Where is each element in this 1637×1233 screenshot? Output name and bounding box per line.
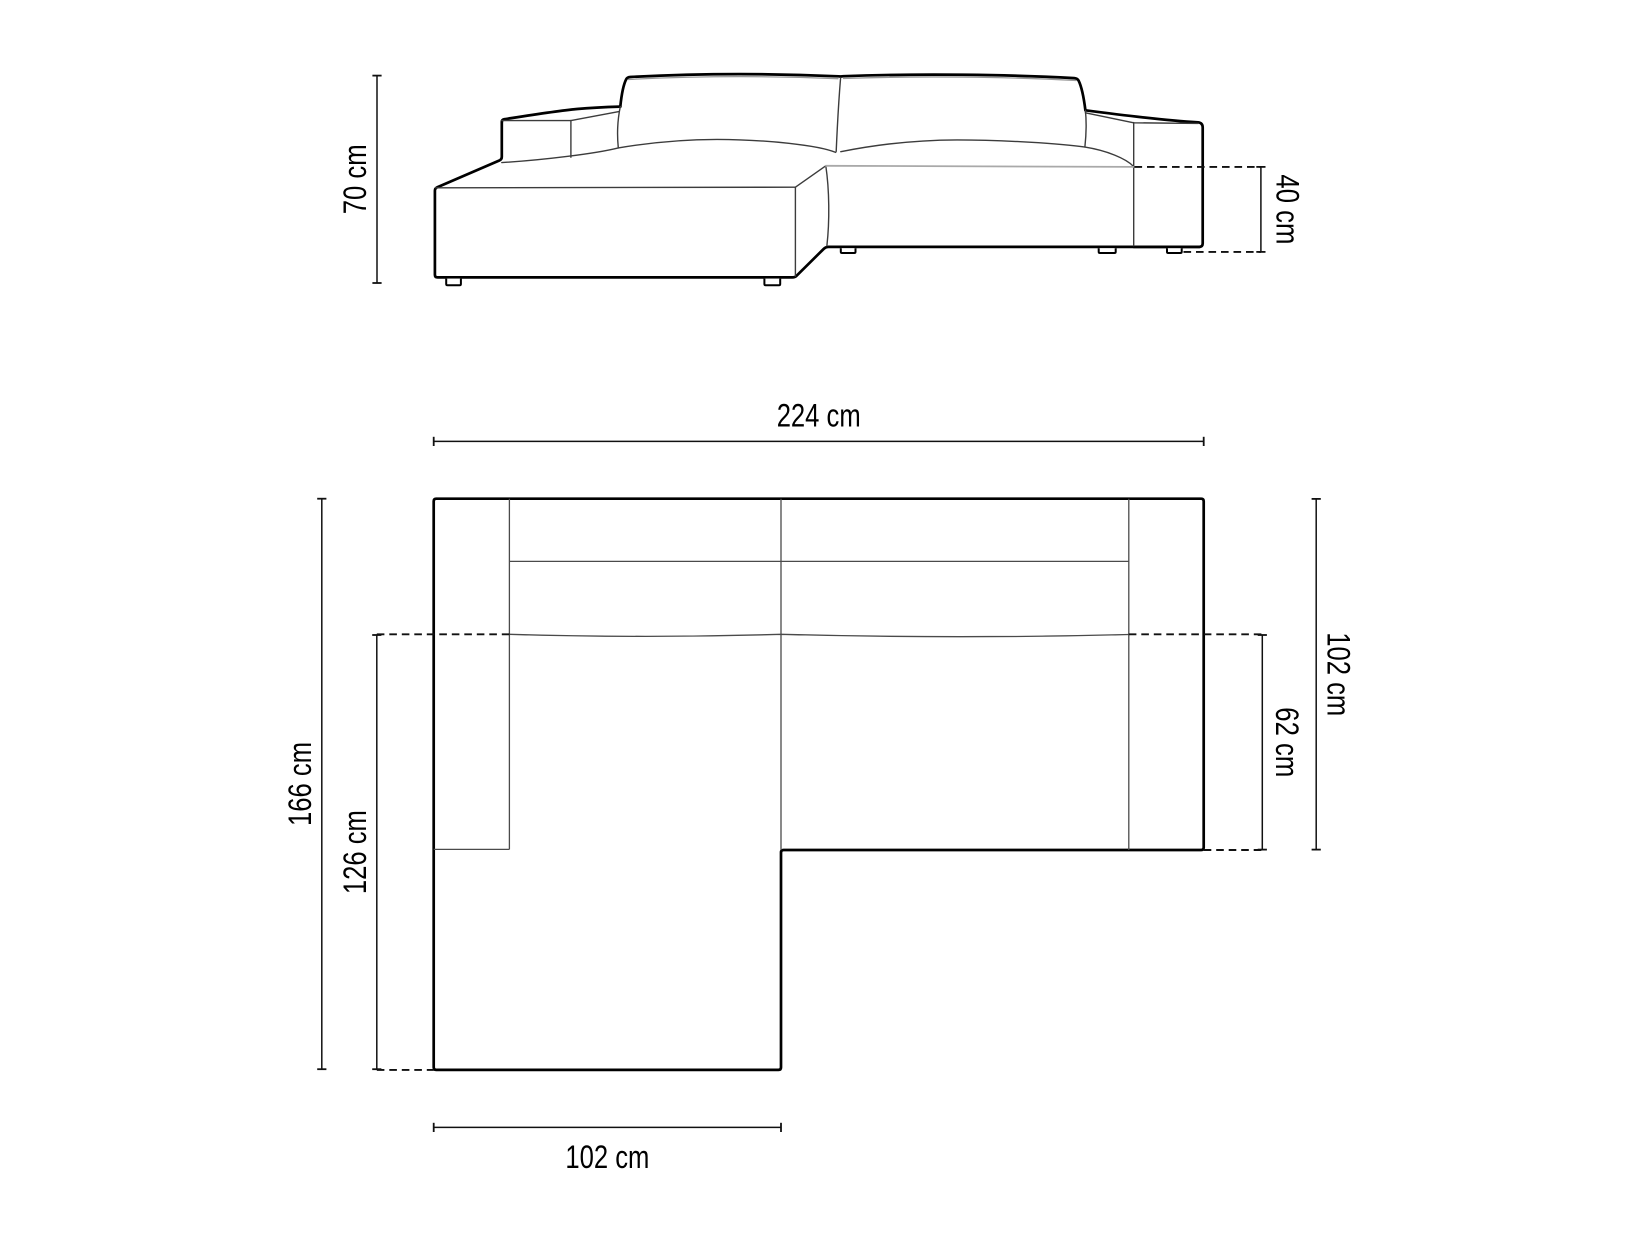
svg-text:40 cm: 40 cm — [1270, 174, 1306, 244]
svg-text:62 cm: 62 cm — [1269, 707, 1305, 777]
svg-text:70 cm: 70 cm — [337, 144, 373, 214]
svg-text:166 cm: 166 cm — [282, 742, 318, 826]
svg-text:102 cm: 102 cm — [1320, 632, 1356, 716]
svg-text:102 cm: 102 cm — [565, 1139, 649, 1175]
svg-text:126 cm: 126 cm — [337, 810, 373, 894]
svg-text:224 cm: 224 cm — [777, 398, 861, 434]
